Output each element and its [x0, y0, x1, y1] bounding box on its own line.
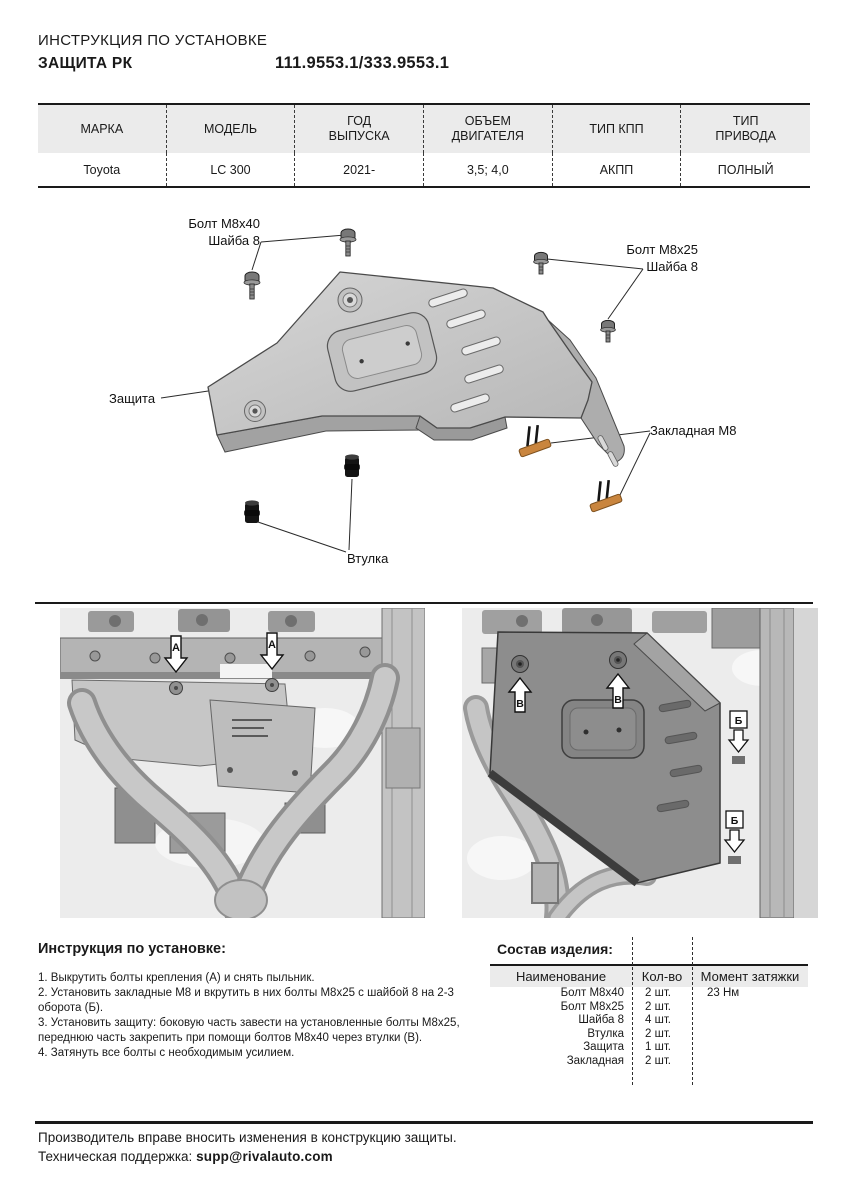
part-name: Втулка	[490, 1028, 632, 1042]
marker-letter-b: Б	[735, 715, 743, 727]
parts-header-torque: Момент затяжки	[692, 966, 808, 987]
part-qty: 4 шт.	[632, 1014, 692, 1028]
label-bolt-m8x40: Болт M8x40	[188, 216, 260, 231]
part-name: Болт M8x40	[490, 987, 632, 1001]
install-step: 2. Установить закладные М8 и вкрутить в …	[38, 986, 492, 1016]
spec-header-model: МОДЕЛЬ	[167, 105, 296, 153]
bushing-icon	[244, 500, 260, 523]
part-torque	[692, 1001, 808, 1015]
parts-list-divider	[692, 937, 693, 1085]
marker-letter-a: А	[268, 639, 276, 651]
spec-value-gearbox: АКПП	[553, 153, 682, 186]
spec-header-brand: МАРКА	[38, 105, 167, 153]
embedded-nut-icon	[519, 425, 552, 457]
parts-row: Закладная 2 шт.	[490, 1055, 808, 1069]
product-title: ЗАЩИТА РК	[38, 55, 132, 73]
parts-row: Шайба 8 4 шт.	[490, 1014, 808, 1028]
parts-row: Болт M8x40 2 шт. 23 Нм	[490, 987, 808, 1001]
marker-letter-v: В	[516, 698, 524, 710]
marker-letter-v: В	[614, 694, 622, 706]
spec-value-model: LC 300	[167, 153, 296, 186]
parts-header-qty: Кол-во	[632, 966, 692, 987]
parts-list: Состав изделия: Наименование Кол-во Моме…	[490, 941, 808, 1068]
marker-letter-b: Б	[731, 815, 739, 827]
part-torque: 23 Нм	[692, 987, 808, 1001]
exploded-diagram: Болт M8x40 Шайба 8 Болт M8x25 Шайба 8 За…	[0, 200, 847, 603]
part-name: Закладная	[490, 1055, 632, 1069]
parts-row: Втулка 2 шт.	[490, 1028, 808, 1042]
part-name: Защита	[490, 1041, 632, 1055]
photo-stock-underbody: А А	[60, 608, 425, 918]
label-embedded-nut: Закладная M8	[650, 423, 736, 438]
parts-header-row: Наименование Кол-во Момент затяжки	[490, 966, 808, 987]
parts-list-divider	[632, 937, 633, 1085]
label-shield: Защита	[109, 391, 156, 406]
part-torque	[692, 1014, 808, 1028]
label-washer8-right: Шайба 8	[646, 259, 698, 274]
support-email: supp@rivalauto.com	[196, 1149, 333, 1164]
spec-header-engine: ОБЪЕМ ДВИГАТЕЛЯ	[424, 105, 553, 153]
part-qty: 2 шт.	[632, 1001, 692, 1015]
spec-header-row: МАРКА МОДЕЛЬ ГОД ВЫПУСКА ОБЪЕМ ДВИГАТЕЛЯ…	[38, 105, 810, 153]
parts-table: Наименование Кол-во Момент затяжки Болт …	[490, 964, 808, 1068]
bushing-icon	[344, 454, 360, 477]
marker-letter-a: А	[172, 642, 180, 654]
label-washer8-left: Шайба 8	[208, 233, 260, 248]
parts-list-title: Состав изделия:	[497, 941, 808, 957]
spec-header-gearbox: ТИП КПП	[553, 105, 682, 153]
part-qty: 2 шт.	[632, 1055, 692, 1069]
spec-value-year: 2021-	[295, 153, 424, 186]
part-name: Болт M8x25	[490, 1001, 632, 1015]
install-step: 3. Установить защиту: боковую часть заве…	[38, 1016, 492, 1046]
spec-value-brand: Toyota	[38, 153, 167, 186]
plate-bolt-hole	[245, 401, 266, 422]
bolt-m8x40-icon	[340, 229, 356, 256]
part-torque	[692, 1055, 808, 1069]
parts-row: Болт M8x25 2 шт.	[490, 1001, 808, 1015]
part-torque	[692, 1041, 808, 1055]
install-instructions: Инструкция по установке: 1. Выкрутить бо…	[38, 941, 492, 1061]
spec-value-engine: 3,5; 4,0	[424, 153, 553, 186]
support-label: Техническая поддержка:	[38, 1149, 192, 1164]
document-title: ИНСТРУКЦИЯ ПО УСТАНОВКЕ	[38, 32, 267, 49]
footer-support: Техническая поддержка: supp@rivalauto.co…	[38, 1149, 333, 1164]
part-qty: 1 шт.	[632, 1041, 692, 1055]
part-numbers: 111.9553.1/333.9553.1	[275, 54, 449, 73]
install-title: Инструкция по установке:	[38, 941, 492, 957]
label-bushing: Втулка	[347, 551, 389, 566]
photo-installed-shield: В В Б Б	[462, 608, 818, 918]
part-torque	[692, 1028, 808, 1042]
instruction-sheet: ИНСТРУКЦИЯ ПО УСТАНОВКЕ ЗАЩИТА РК 111.95…	[0, 0, 847, 1200]
plate-bolt-hole	[338, 288, 362, 312]
parts-header-name: Наименование	[490, 966, 632, 987]
spec-value-drive: ПОЛНЫЙ	[681, 153, 810, 186]
part-name: Шайба 8	[490, 1014, 632, 1028]
part-qty: 2 шт.	[632, 1028, 692, 1042]
bolt-m8x40-icon	[244, 272, 260, 299]
part-qty: 2 шт.	[632, 987, 692, 1001]
skid-plate-drawing	[208, 272, 624, 467]
vehicle-spec-table: МАРКА МОДЕЛЬ ГОД ВЫПУСКА ОБЪЕМ ДВИГАТЕЛЯ…	[38, 103, 810, 188]
spec-header-year: ГОД ВЫПУСКА	[295, 105, 424, 153]
install-step: 1. Выкрутить болты крепления (А) и снять…	[38, 971, 492, 986]
bolt-m8x25-icon	[601, 320, 616, 342]
spec-value-row: Toyota LC 300 2021- 3,5; 4,0 АКПП ПОЛНЫЙ	[38, 153, 810, 186]
parts-row: Защита 1 шт.	[490, 1041, 808, 1055]
spec-header-drive: ТИП ПРИВОДА	[681, 105, 810, 153]
embedded-nut-icon	[590, 480, 623, 512]
install-step: 4. Затянуть все болты с необходимым усил…	[38, 1046, 492, 1061]
bolt-m8x25-icon	[534, 252, 549, 274]
footer-disclaimer: Производитель вправе вносить изменения в…	[38, 1130, 457, 1145]
divider-line	[35, 602, 813, 604]
footer-divider-line	[35, 1121, 813, 1124]
label-bolt-m8x25: Болт M8x25	[626, 242, 698, 257]
